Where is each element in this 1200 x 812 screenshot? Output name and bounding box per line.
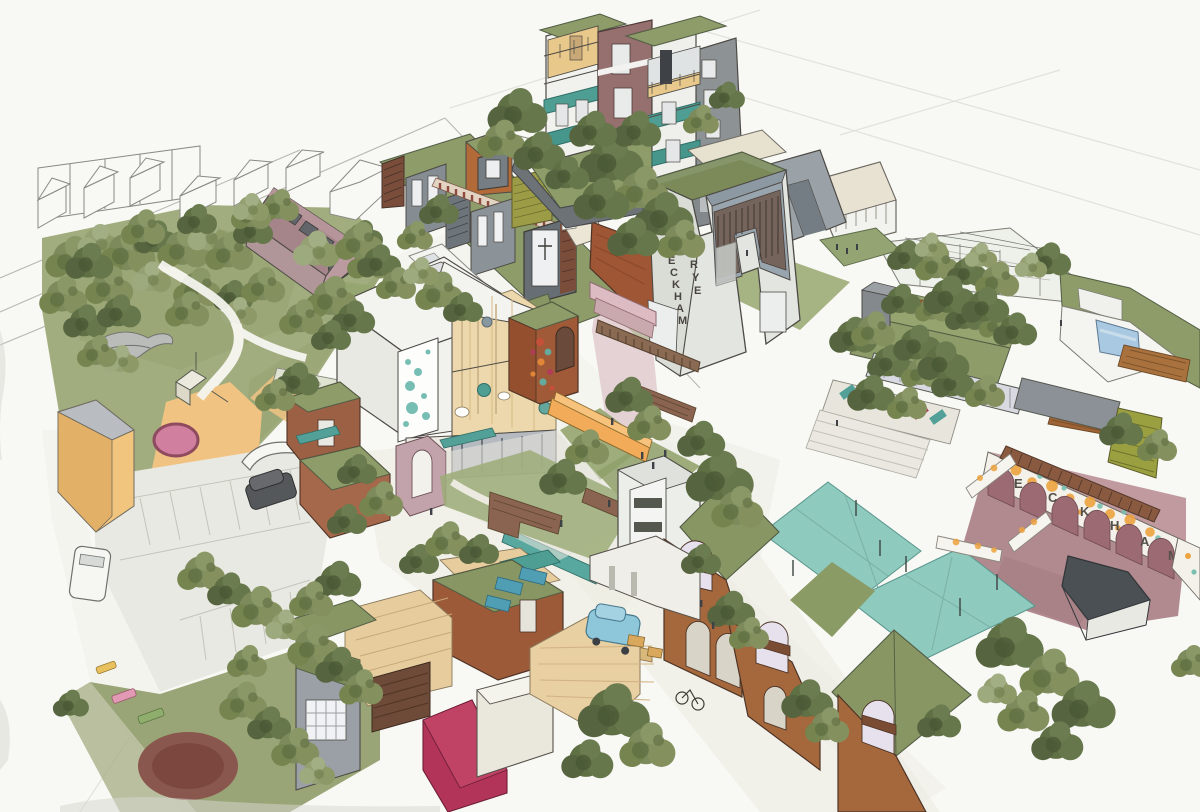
svg-text:E: E [1014,476,1023,491]
svg-text:M: M [678,315,687,327]
svg-text:E: E [694,285,701,297]
svg-text:C: C [670,267,678,279]
svg-text:K: K [1080,504,1090,519]
svg-text:C: C [1048,490,1058,505]
svg-text:K: K [672,279,680,291]
svg-text:H: H [1110,518,1119,533]
svg-text:Y: Y [692,272,700,284]
svg-text:H: H [674,291,682,303]
svg-text:R: R [690,259,698,271]
svg-text:A: A [1140,534,1150,549]
